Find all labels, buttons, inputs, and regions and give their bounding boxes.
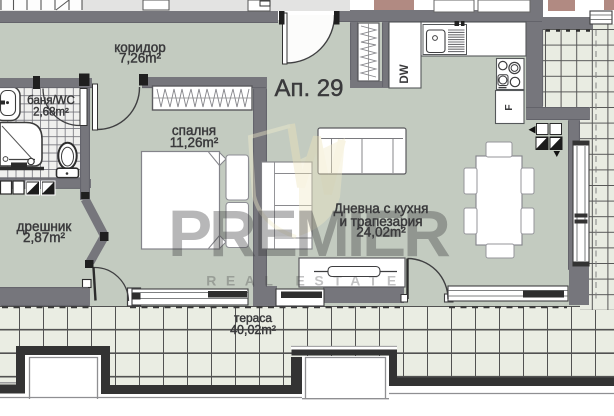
svg-text:DW: DW (399, 64, 411, 83)
svg-text:баня/WC: баня/WC (27, 95, 75, 107)
svg-text:2,68m²: 2,68m² (33, 107, 69, 119)
svg-text:40,02m²: 40,02m² (230, 323, 276, 337)
svg-text:F: F (503, 104, 515, 111)
svg-text:2,87m²: 2,87m² (23, 230, 66, 245)
svg-text:24,02m²: 24,02m² (356, 225, 406, 240)
svg-text:11,26m²: 11,26m² (170, 135, 219, 150)
svg-text:7,26m²: 7,26m² (119, 51, 162, 66)
svg-text:Ап. 29: Ап. 29 (274, 75, 343, 102)
svg-text:REAL ESTATE: REAL ESTATE (206, 273, 405, 289)
